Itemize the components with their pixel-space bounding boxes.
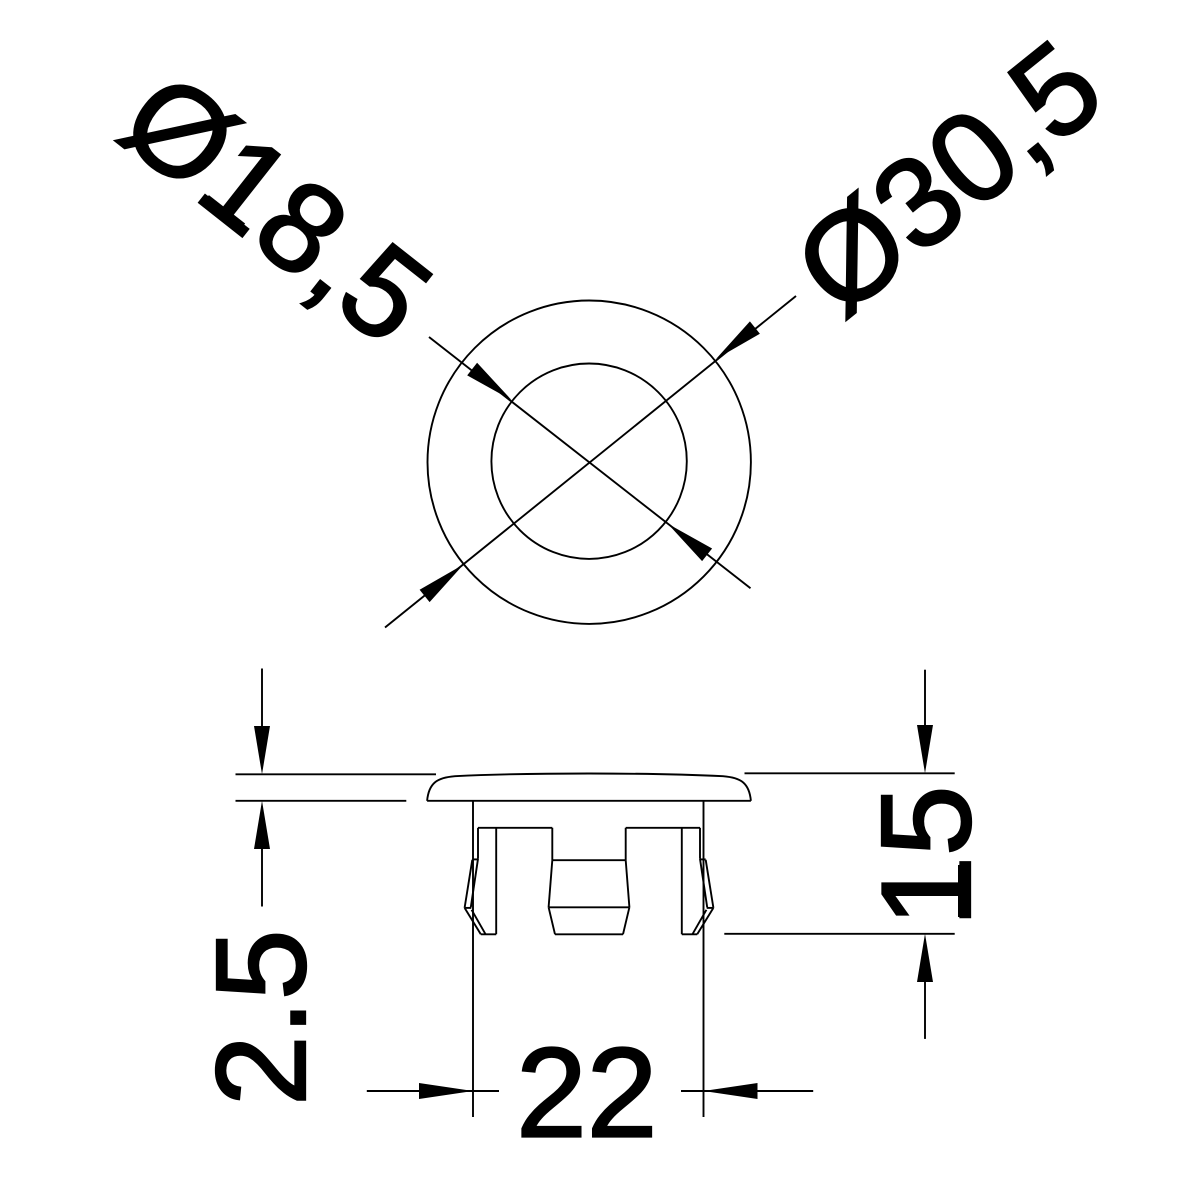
svg-text:22: 22 — [516, 1021, 657, 1163]
svg-text:2.5: 2.5 — [190, 929, 332, 1106]
svg-text:Ø18,5: Ø18,5 — [97, 45, 457, 371]
svg-text:Ø30,5: Ø30,5 — [769, 13, 1127, 341]
svg-text:15: 15 — [855, 786, 997, 927]
